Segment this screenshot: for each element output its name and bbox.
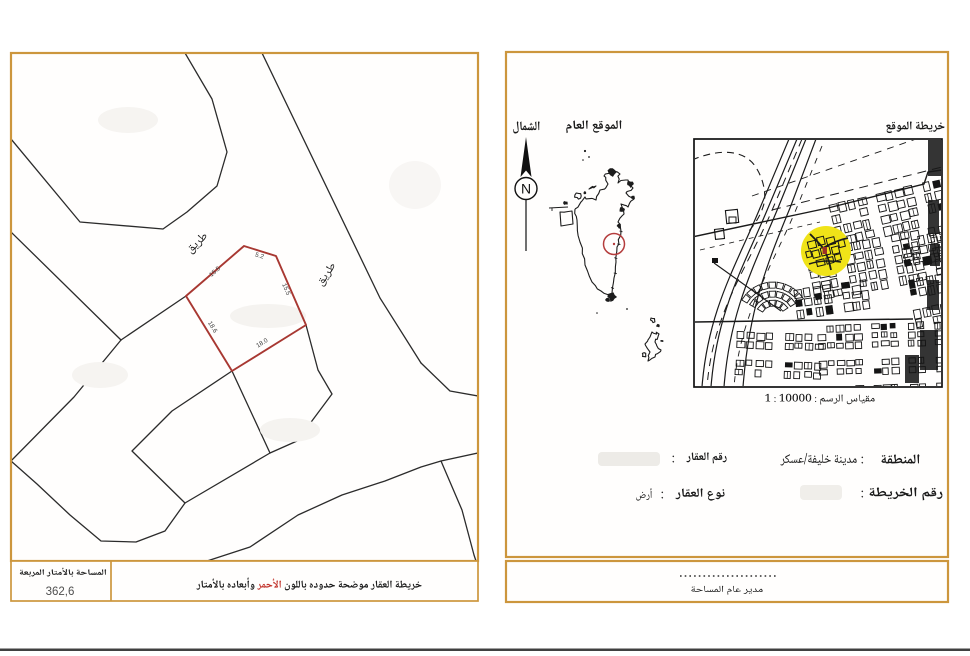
svg-text:N: N <box>521 181 531 197</box>
svg-text:362,6: 362,6 <box>46 586 75 598</box>
